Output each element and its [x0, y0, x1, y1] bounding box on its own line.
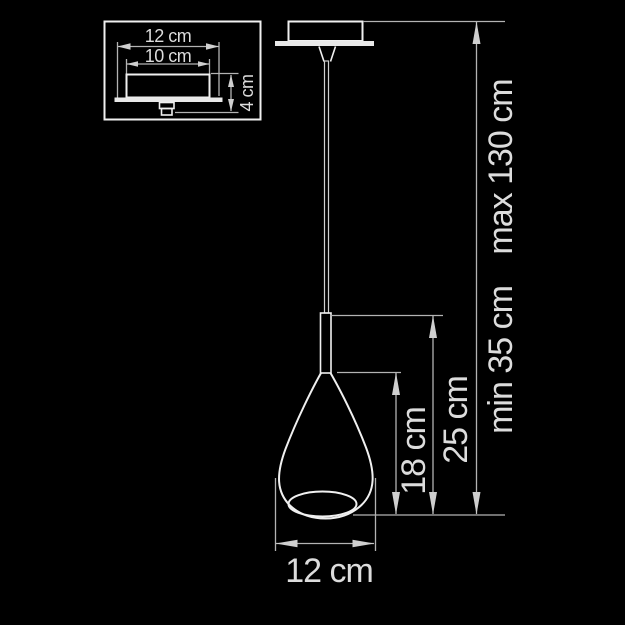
arrowhead-right-icon: [198, 61, 210, 67]
arrowhead-up-icon: [473, 22, 481, 45]
arrowhead-up-icon: [392, 373, 400, 396]
arrowhead-right-icon: [353, 540, 375, 547]
shade-width-label: 12 cm: [285, 554, 373, 588]
inset-cord-connector: [160, 103, 175, 109]
inset-height-dimension: [175, 74, 239, 113]
shade-width-dimension: [276, 540, 375, 547]
arrowhead-right-icon: [206, 43, 219, 50]
line-drawing: [0, 0, 625, 625]
dimensional-diagram: max 130 cm min 35 cm 25 cm 18 cm 12 cm 1…: [0, 0, 625, 625]
shade-height-label: 18 cm: [397, 407, 431, 495]
arrowhead-left-icon: [118, 43, 131, 50]
arrowhead-left-icon: [127, 61, 139, 67]
pendant-lamp-drawing: [275, 22, 374, 519]
cord-grip: [319, 47, 336, 62]
inset-cord-connector-tip: [162, 109, 173, 116]
max-overall-height-label: max 130 cm: [484, 79, 518, 254]
arrowhead-up-icon: [228, 75, 234, 88]
suspension-cord: [325, 61, 329, 313]
inset-canopy-side-view: [115, 75, 223, 116]
canopy-body: [289, 22, 363, 42]
dimension-lines: [276, 22, 506, 552]
mounting-plate: [275, 41, 374, 46]
inset-plate-width-label: 12 cm: [145, 27, 192, 45]
fixture-height-label: 25 cm: [439, 376, 473, 464]
inset-height-label: 4 cm: [238, 74, 256, 111]
shade-bottom-rim: [289, 492, 357, 517]
arrowhead-down-icon: [429, 492, 437, 515]
inset-mounting-plate: [115, 98, 223, 103]
inset-body-width-label: 10 cm: [145, 47, 192, 65]
arrowhead-up-icon: [429, 316, 437, 339]
min-overall-height-label: min 35 cm: [484, 286, 518, 434]
arrowhead-down-icon: [228, 99, 234, 112]
arrowhead-down-icon: [473, 492, 481, 515]
inset-canopy-body: [127, 75, 210, 98]
arrowhead-left-icon: [276, 540, 298, 547]
arrowhead-down-icon: [392, 492, 400, 515]
stem-rod: [321, 313, 332, 373]
